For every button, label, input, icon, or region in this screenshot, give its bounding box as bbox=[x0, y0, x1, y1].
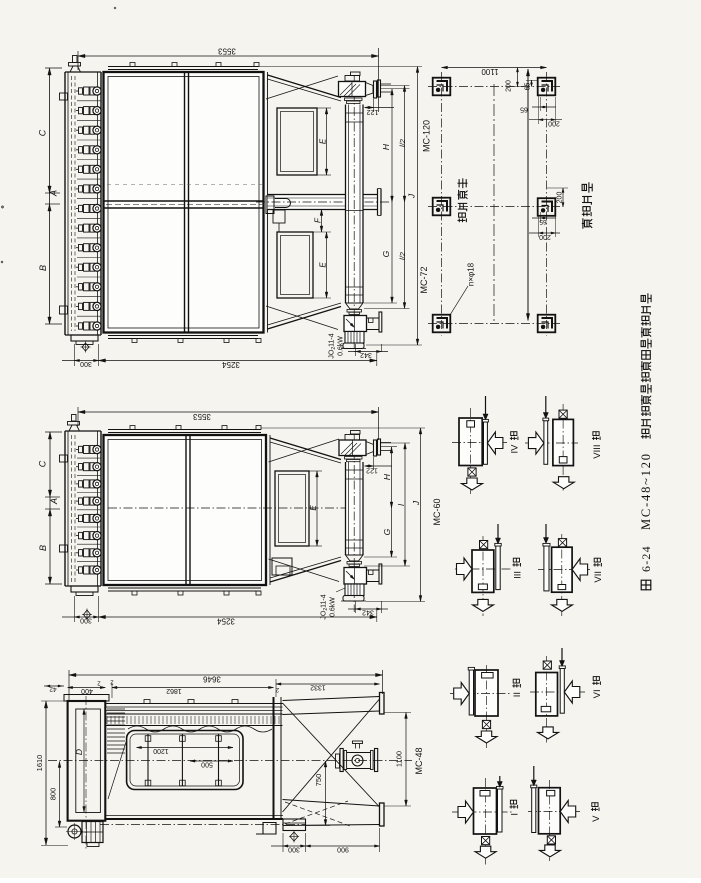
svg-text:3553: 3553 bbox=[193, 412, 211, 421]
svg-text:C: C bbox=[38, 460, 48, 467]
svg-text:1862: 1862 bbox=[166, 687, 182, 694]
svg-text:342: 342 bbox=[362, 609, 374, 616]
svg-text:900: 900 bbox=[337, 846, 349, 853]
svg-text:MC-120: MC-120 bbox=[422, 120, 432, 152]
svg-text:C: C bbox=[38, 129, 48, 136]
svg-text:E: E bbox=[309, 505, 318, 511]
svg-text:65: 65 bbox=[520, 106, 528, 113]
svg-text:500: 500 bbox=[201, 761, 213, 768]
svg-text:E: E bbox=[319, 262, 328, 268]
svg-text:800: 800 bbox=[49, 788, 58, 801]
svg-text:300: 300 bbox=[288, 846, 300, 853]
svg-text:B: B bbox=[38, 545, 48, 551]
svg-text:1100: 1100 bbox=[395, 751, 404, 767]
svg-text:G: G bbox=[382, 528, 392, 535]
svg-text:l/2: l/2 bbox=[398, 251, 407, 260]
svg-text:J: J bbox=[411, 500, 421, 506]
svg-text:122: 122 bbox=[367, 108, 379, 115]
svg-text:D: D bbox=[74, 749, 84, 755]
svg-text:3553: 3553 bbox=[218, 47, 236, 56]
svg-text:I: I bbox=[509, 813, 520, 816]
svg-text:MC-48~120: MC-48~120 bbox=[639, 452, 653, 530]
svg-text:J: J bbox=[407, 193, 417, 199]
svg-text:65: 65 bbox=[525, 83, 532, 91]
svg-text:l/2: l/2 bbox=[398, 138, 407, 147]
svg-text:0.6kW: 0.6kW bbox=[338, 336, 345, 356]
svg-text:E: E bbox=[319, 138, 328, 144]
svg-text:VII: VII bbox=[593, 571, 604, 583]
svg-text:MC-60: MC-60 bbox=[432, 498, 442, 525]
svg-text:3254: 3254 bbox=[217, 617, 235, 626]
svg-text:A: A bbox=[49, 498, 59, 505]
svg-text:3646: 3646 bbox=[203, 675, 221, 684]
svg-text:VI: VI bbox=[592, 689, 603, 698]
svg-text:200: 200 bbox=[557, 192, 564, 204]
svg-text:6-24: 6-24 bbox=[639, 545, 653, 572]
svg-text:65: 65 bbox=[539, 218, 547, 225]
svg-text:42: 42 bbox=[49, 686, 57, 693]
svg-text:MC-72: MC-72 bbox=[419, 266, 429, 293]
svg-text:V: V bbox=[591, 815, 602, 822]
svg-text:122: 122 bbox=[366, 467, 378, 474]
svg-text:H: H bbox=[382, 473, 392, 480]
svg-text:B: B bbox=[38, 265, 48, 271]
svg-text:l: l bbox=[397, 504, 406, 506]
svg-text:300: 300 bbox=[80, 617, 92, 624]
svg-text:342: 342 bbox=[360, 351, 372, 358]
svg-text:G: G bbox=[381, 250, 391, 257]
svg-text:H: H bbox=[381, 143, 391, 150]
svg-text:3254: 3254 bbox=[222, 360, 240, 369]
svg-text:400: 400 bbox=[81, 687, 93, 694]
svg-text:MC-48: MC-48 bbox=[414, 747, 424, 774]
svg-text:1610: 1610 bbox=[35, 755, 44, 772]
svg-text:1332: 1332 bbox=[310, 684, 326, 691]
svg-text:1200: 1200 bbox=[153, 747, 169, 754]
svg-text:A: A bbox=[49, 190, 59, 197]
svg-text:200: 200 bbox=[506, 80, 513, 92]
svg-text:300: 300 bbox=[80, 360, 92, 367]
svg-text:n×φ18: n×φ18 bbox=[467, 262, 476, 286]
svg-text:II: II bbox=[512, 692, 523, 697]
svg-text:1100: 1100 bbox=[481, 67, 499, 76]
svg-text:VIII: VIII bbox=[592, 445, 603, 459]
svg-text:III: III bbox=[512, 571, 523, 579]
svg-text:0.6kW: 0.6kW bbox=[330, 597, 337, 617]
svg-text:750: 750 bbox=[314, 774, 323, 787]
svg-text:200: 200 bbox=[539, 233, 551, 240]
svg-text:200: 200 bbox=[548, 120, 560, 127]
svg-text:IV: IV bbox=[510, 444, 521, 454]
